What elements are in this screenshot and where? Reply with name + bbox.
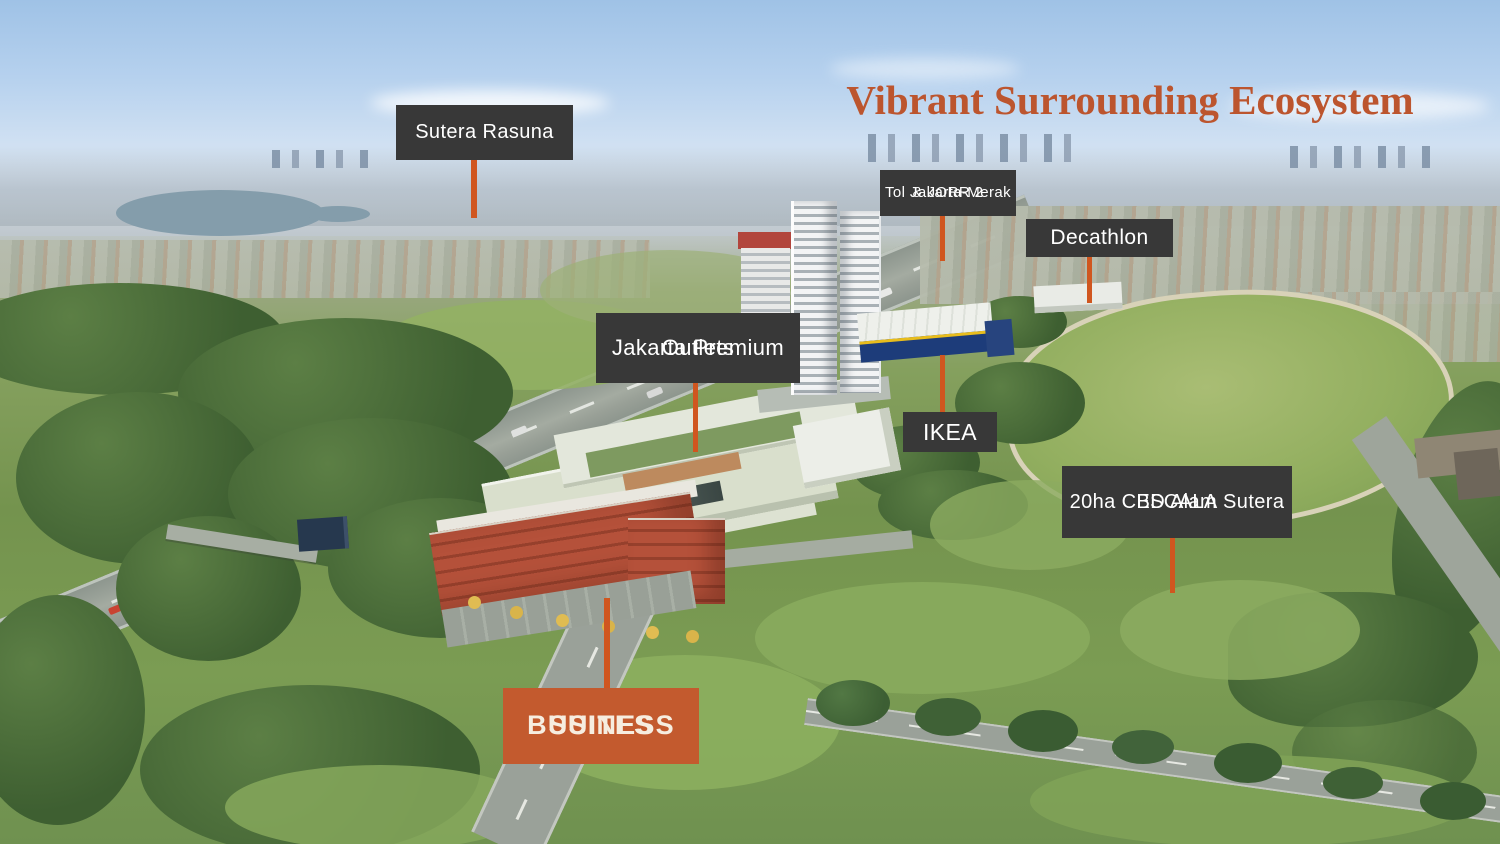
label-text: IKEA [923,419,977,446]
grass-patch [1120,580,1360,680]
callout-tol-jakarta-merak-jorr2: Tol Jakarta-Merak & JORR 2 [880,170,1016,216]
ikea-store-front [984,319,1014,357]
lake [306,206,370,222]
aerial-photo [0,0,1500,844]
distant-skyline [1290,146,1440,168]
apartment-tower [840,211,881,393]
pointer-line [940,216,945,261]
callout-jakarta-premium-outlets: Jakarta Premium Outlets [596,313,800,383]
distant-skyline [868,134,1078,162]
lake [116,190,324,236]
grass-patch [755,582,1090,694]
label-text: SUITES [549,709,654,743]
pointer-line [1170,538,1175,593]
suburban-area-right [920,206,1500,304]
callout-decathlon: Decathlon [1026,219,1173,257]
tower-red-roof [738,232,792,249]
callout-sutera-rasuna: Sutera Rasuna [396,105,573,160]
label-text: Sutera Rasuna [415,121,554,144]
pointer-line [604,598,610,688]
distant-skyline [272,150,372,168]
pointer-line [693,383,698,452]
roadside-tree-row [816,680,890,726]
label-text: & JORR 2 [913,184,984,203]
callout-business-suites: BUSINESS SUITES [503,688,699,764]
label-text: Outlets [662,334,735,363]
page-title: Vibrant Surrounding Ecosystem [800,77,1460,124]
building-right [1454,448,1500,500]
decathlon-building [1033,282,1122,314]
yellow-flowering-trees [468,596,481,609]
pointer-line [1087,257,1092,303]
highway-billboard [297,516,349,551]
label-text: Decathlon [1050,226,1148,250]
callout-ikea: IKEA [903,412,997,452]
label-text: 20ha CBD Alam Sutera [1070,489,1285,516]
pointer-line [471,160,477,218]
marketing-slide: Vibrant Surrounding Ecosystem Sutera Ras… [0,0,1500,844]
callout-escala-cbd-alam-sutera: ESCALA 20ha CBD Alam Sutera [1062,466,1292,538]
pointer-line [940,355,945,412]
